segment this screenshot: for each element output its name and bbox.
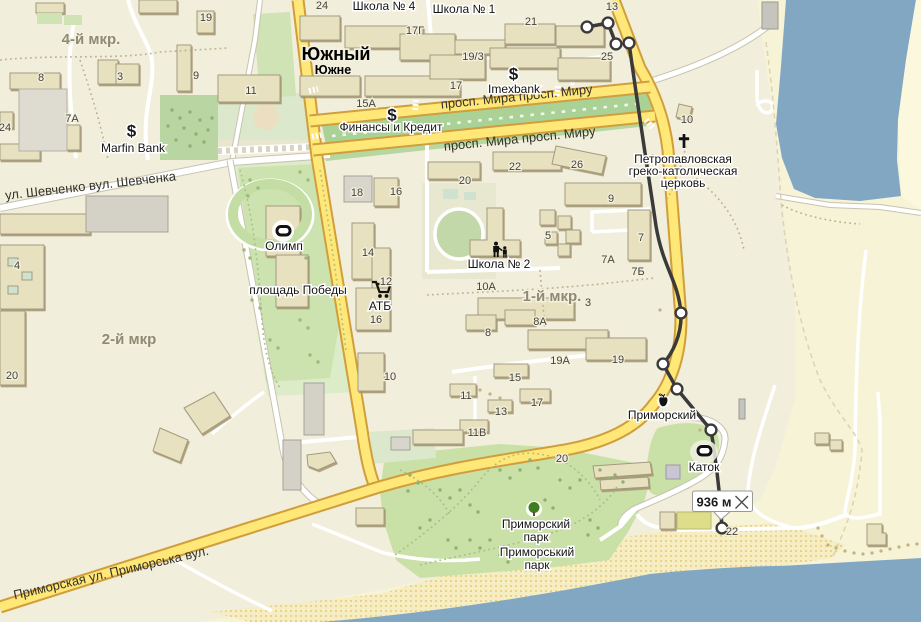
svg-text:Приморський: Приморський: [500, 545, 575, 559]
svg-text:Южне: Южне: [315, 63, 351, 77]
svg-text:Южный: Южный: [302, 44, 371, 64]
svg-text:Marfin Bank: Marfin Bank: [101, 141, 166, 155]
svg-text:13: 13: [606, 1, 618, 13]
svg-text:26: 26: [571, 159, 583, 171]
svg-text:14: 14: [362, 247, 374, 259]
svg-text:15А: 15А: [356, 98, 376, 110]
svg-text:9: 9: [608, 193, 614, 205]
svg-text:парк: парк: [524, 558, 550, 572]
svg-text:18: 18: [351, 187, 363, 199]
svg-text:24: 24: [316, 0, 328, 12]
svg-text:Школа № 4: Школа № 4: [353, 0, 416, 13]
svg-text:Школа № 2: Школа № 2: [468, 257, 531, 271]
svg-text:1-й мкр.: 1-й мкр.: [523, 288, 582, 305]
svg-text:Олимп: Олимп: [265, 239, 303, 253]
svg-text:АТБ: АТБ: [369, 299, 391, 313]
svg-text:19: 19: [612, 354, 624, 366]
svg-text:площадь Победы: площадь Победы: [249, 283, 347, 297]
svg-text:Imexbank: Imexbank: [488, 82, 541, 96]
svg-text:7Б: 7Б: [631, 266, 644, 278]
svg-text:4: 4: [14, 260, 20, 272]
svg-text:3: 3: [585, 297, 591, 309]
svg-text:16: 16: [390, 186, 402, 198]
svg-text:8А: 8А: [533, 316, 547, 328]
svg-text:17: 17: [450, 80, 462, 92]
svg-text:19/3: 19/3: [462, 51, 483, 63]
svg-text:5: 5: [545, 230, 551, 242]
svg-text:20: 20: [556, 453, 568, 465]
svg-text:Финансы и Кредит: Финансы и Кредит: [339, 120, 443, 134]
svg-text:4-й мкр.: 4-й мкр.: [62, 31, 121, 48]
svg-text:парк: парк: [523, 530, 549, 544]
svg-text:11: 11: [245, 85, 256, 97]
svg-text:Приморский: Приморский: [502, 517, 570, 531]
svg-text:Каток: Каток: [689, 460, 720, 474]
svg-text:10: 10: [384, 371, 396, 383]
svg-text:22: 22: [509, 161, 521, 173]
svg-text:25: 25: [601, 51, 613, 63]
svg-text:7А: 7А: [65, 113, 79, 125]
svg-text:Школа № 1: Школа № 1: [433, 2, 496, 16]
svg-text:11В: 11В: [468, 427, 487, 439]
svg-text:7: 7: [638, 232, 644, 244]
svg-text:8: 8: [485, 327, 491, 339]
svg-text:церковь: церковь: [661, 176, 706, 190]
svg-text:19: 19: [200, 12, 212, 24]
svg-text:8: 8: [38, 72, 44, 84]
svg-text:20: 20: [459, 175, 471, 187]
svg-text:15: 15: [509, 372, 521, 384]
svg-text:$: $: [127, 122, 137, 141]
svg-text:9: 9: [193, 70, 199, 82]
svg-text:10: 10: [681, 114, 693, 126]
svg-text:16: 16: [370, 314, 382, 326]
svg-text:17: 17: [531, 397, 543, 409]
svg-text:17Г: 17Г: [406, 25, 424, 37]
svg-text:$: $: [509, 65, 519, 84]
svg-text:21: 21: [525, 16, 537, 28]
svg-text:11: 11: [460, 390, 471, 402]
svg-text:13: 13: [495, 406, 507, 418]
svg-text:3: 3: [117, 71, 123, 83]
svg-text:936 м: 936 м: [697, 495, 732, 510]
svg-text:Приморский: Приморский: [628, 408, 696, 422]
svg-text:7А: 7А: [601, 254, 615, 266]
svg-text:19А: 19А: [550, 355, 570, 367]
svg-text:24: 24: [0, 122, 11, 134]
svg-text:2-й мкр: 2-й мкр: [102, 331, 157, 348]
svg-text:10А: 10А: [476, 281, 496, 293]
svg-text:20: 20: [6, 370, 18, 382]
svg-text:12: 12: [380, 276, 392, 288]
svg-text:22: 22: [726, 526, 738, 538]
